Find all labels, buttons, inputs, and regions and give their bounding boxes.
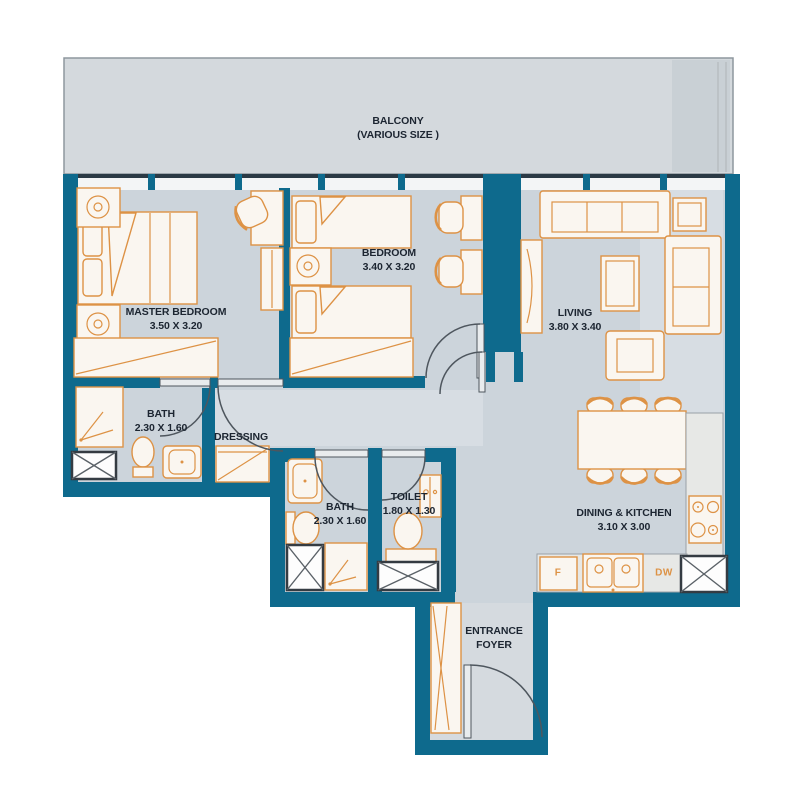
dining-table xyxy=(578,411,686,469)
coffee-table xyxy=(601,256,639,311)
room-size: 3.40 X 3.20 xyxy=(362,260,416,274)
room-size: 3.80 X 3.40 xyxy=(549,320,602,334)
dressing-wardrobe xyxy=(216,446,269,482)
room-name: BALCONY xyxy=(357,114,439,128)
master-bath-door xyxy=(160,379,210,386)
shower xyxy=(76,387,123,447)
toilet-door xyxy=(382,450,425,457)
toilet-label: TOILET 1.80 X 1.30 xyxy=(383,490,436,518)
stove xyxy=(689,496,721,543)
room-name: BATH xyxy=(314,500,367,514)
living-label: LIVING 3.80 X 3.40 xyxy=(549,306,602,334)
floor-plan-page: BALCONY (VARIOUS SIZE ) MASTER BEDROOM 3… xyxy=(0,0,800,800)
shaft-kitchen xyxy=(681,556,727,592)
room-size: 2.30 X 1.60 xyxy=(314,514,367,528)
room-name: ENTRANCE xyxy=(465,624,523,638)
room-size: 3.50 X 3.20 xyxy=(126,319,227,333)
nightstand xyxy=(77,188,120,227)
dining-kitchen-label: DINING & KITCHEN 3.10 X 3.00 xyxy=(576,506,671,534)
room-name: BEDROOM xyxy=(362,246,416,260)
room-name: LIVING xyxy=(549,306,602,320)
master-bath-label: BATH 2.30 X 1.60 xyxy=(135,407,188,435)
shaft-master-bath xyxy=(72,452,116,479)
entrance-door xyxy=(464,665,471,738)
dishwasher-label: DW xyxy=(655,568,673,579)
master-bedroom-label: MASTER BEDROOM 3.50 X 3.20 xyxy=(126,305,227,333)
side-desk xyxy=(461,250,482,294)
room-size: 1.80 X 1.30 xyxy=(383,504,436,518)
room-name: TOILET xyxy=(383,490,436,504)
room-name: FOYER xyxy=(465,638,523,652)
bedroom-label: BEDROOM 3.40 X 3.20 xyxy=(362,246,416,274)
room-size: 2.30 X 1.60 xyxy=(135,421,188,435)
shared-bath-label: BATH 2.30 X 1.60 xyxy=(314,500,367,528)
hall-door xyxy=(479,352,485,392)
double-sink xyxy=(583,554,643,592)
room-size: 3.10 X 3.00 xyxy=(576,520,671,534)
fridge-label: F xyxy=(555,568,562,579)
room-size: (VARIOUS SIZE ) xyxy=(357,128,439,142)
sink xyxy=(288,459,322,503)
room-name: DINING & KITCHEN xyxy=(576,506,671,520)
dressing-label: DRESSING xyxy=(214,430,268,444)
room-name: BATH xyxy=(135,407,188,421)
shaft-shared-bath xyxy=(287,545,323,590)
entrance-foyer-label: ENTRANCE FOYER xyxy=(465,624,523,652)
sofa-three-seat xyxy=(540,191,670,238)
room-name: MASTER BEDROOM xyxy=(126,305,227,319)
armchair xyxy=(606,331,664,380)
chair xyxy=(436,202,463,233)
nightstand xyxy=(290,248,331,285)
master-bedroom-door xyxy=(218,379,283,386)
chair xyxy=(436,256,463,287)
side-desk xyxy=(461,196,482,240)
sink xyxy=(163,446,201,478)
room-name: DRESSING xyxy=(214,430,268,444)
window-band xyxy=(63,174,740,190)
balcony-label: BALCONY (VARIOUS SIZE ) xyxy=(357,114,439,142)
shaft-toilet xyxy=(378,562,438,590)
foyer-closet xyxy=(431,603,461,733)
shared-bath-door xyxy=(315,450,368,457)
toilet xyxy=(132,437,154,477)
shower xyxy=(325,543,367,590)
